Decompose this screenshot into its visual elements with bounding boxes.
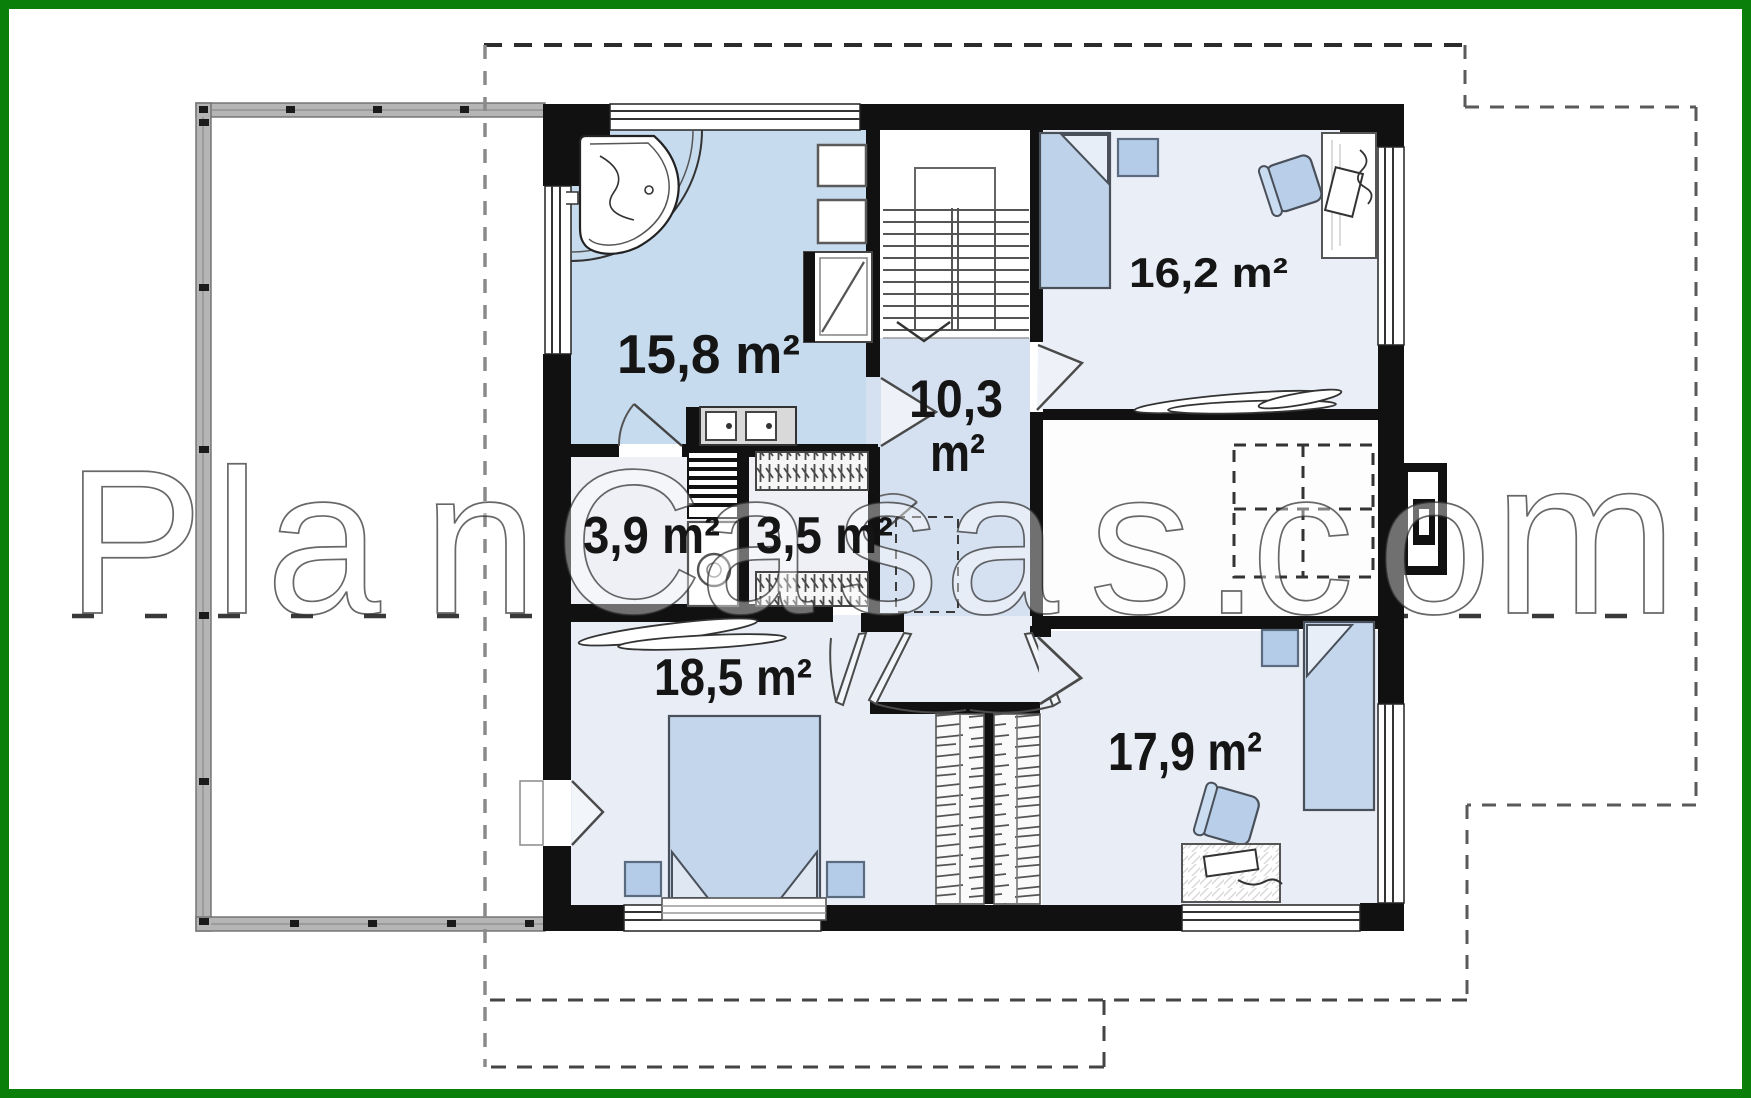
svg-text:n: n: [423, 427, 538, 657]
svg-text:c: c: [1251, 427, 1354, 657]
svg-text:16,2 m²: 16,2 m²: [1129, 249, 1288, 296]
svg-text:a: a: [266, 427, 381, 657]
svg-text:3,9 m²: 3,9 m²: [583, 507, 720, 565]
svg-text:17,9 m²: 17,9 m²: [1108, 722, 1262, 782]
svg-text:18,5 m²: 18,5 m²: [654, 649, 812, 707]
svg-text:15,8 m²: 15,8 m²: [617, 323, 800, 385]
svg-text:m: m: [1493, 413, 1678, 661]
svg-text:10,3: 10,3: [909, 370, 1003, 429]
svg-text:l: l: [214, 427, 260, 657]
svg-text:o: o: [1377, 427, 1492, 657]
svg-text:P: P: [66, 427, 203, 657]
svg-text:3,5 m²: 3,5 m²: [756, 507, 893, 565]
svg-text:m²: m²: [930, 424, 985, 483]
svg-text:s: s: [1089, 427, 1192, 657]
